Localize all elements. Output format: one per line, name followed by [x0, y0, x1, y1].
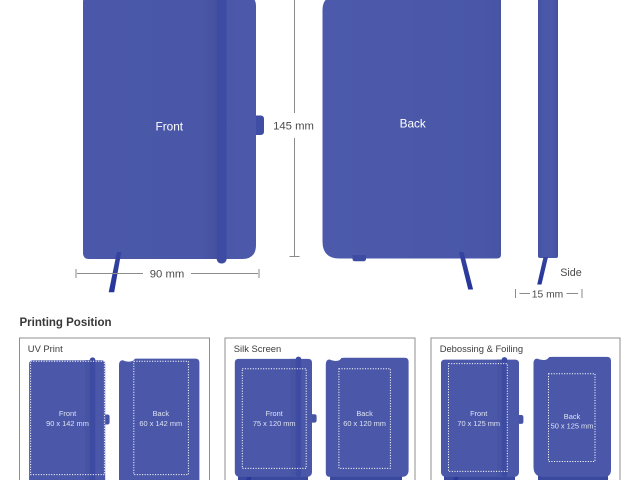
svg-text:Front: Front	[156, 120, 184, 134]
svg-text:Front: Front	[59, 409, 76, 418]
svg-text:Front: Front	[470, 409, 487, 418]
svg-text:90 x 142 mm: 90 x 142 mm	[46, 419, 89, 428]
svg-text:Back: Back	[400, 117, 426, 131]
svg-text:Silk Screen: Silk Screen	[234, 343, 281, 354]
svg-text:Front: Front	[266, 409, 283, 418]
svg-text:15 mm: 15 mm	[532, 289, 563, 300]
svg-text:Side: Side	[560, 267, 582, 279]
svg-text:UV Print: UV Print	[28, 343, 63, 354]
svg-text:Debossing & Foiling: Debossing & Foiling	[440, 343, 523, 354]
svg-text:Back: Back	[564, 412, 581, 421]
svg-text:75 x 120 mm: 75 x 120 mm	[253, 419, 296, 428]
svg-text:Printing Position: Printing Position	[20, 317, 112, 329]
svg-text:90 mm: 90 mm	[150, 269, 185, 281]
svg-text:Back: Back	[153, 409, 170, 418]
svg-text:145 mm: 145 mm	[273, 121, 314, 133]
svg-text:50 x 125 mm: 50 x 125 mm	[551, 421, 594, 430]
svg-text:60 x 120 mm: 60 x 120 mm	[343, 419, 386, 428]
svg-text:60 x 142 mm: 60 x 142 mm	[139, 419, 182, 428]
svg-text:70 x 125 mm: 70 x 125 mm	[457, 419, 500, 428]
svg-text:Back: Back	[356, 409, 373, 418]
